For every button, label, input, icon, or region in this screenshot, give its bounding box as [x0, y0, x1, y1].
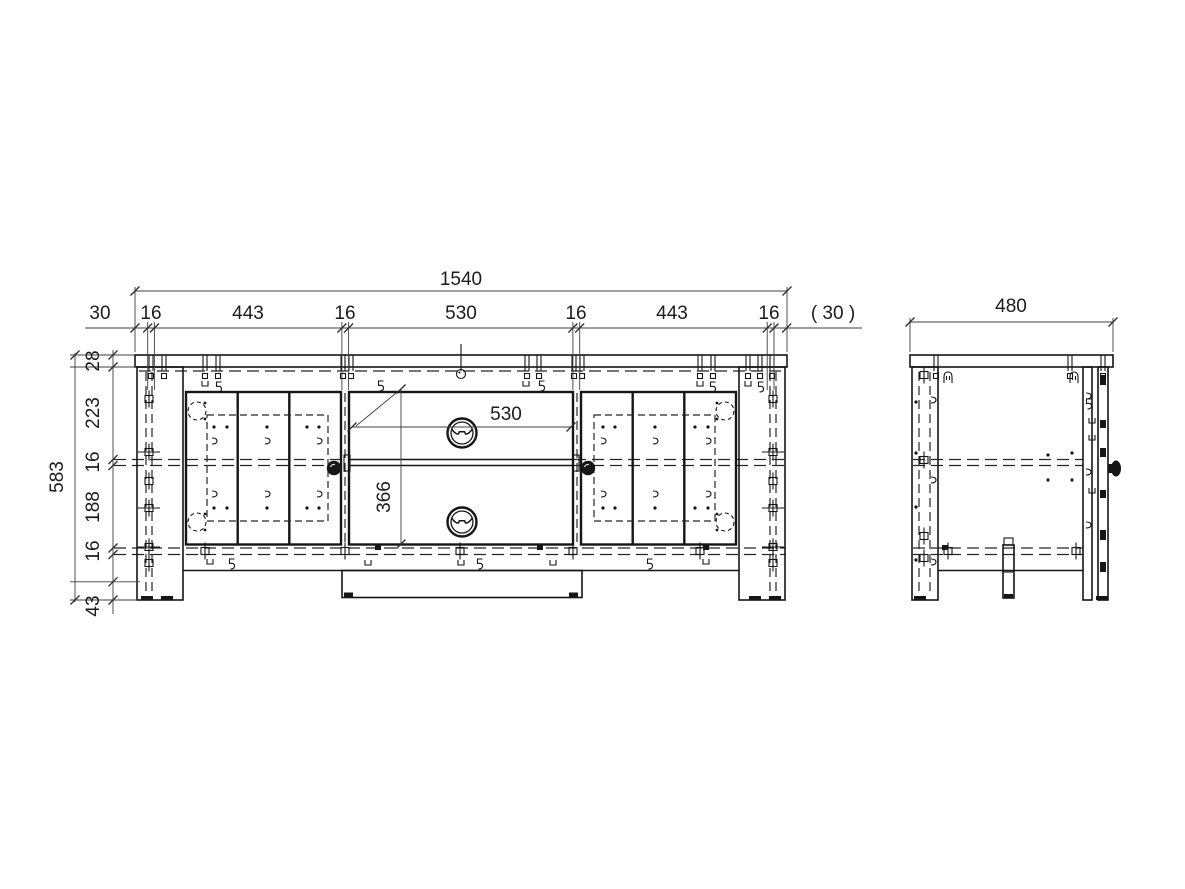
technical-drawing-page: 1540 30 16 443 16 530 16 443 16 ( 30 ) [0, 0, 1185, 889]
dim-label-door-left: 443 [232, 303, 264, 324]
dim-label-top-thickness: 28 [83, 350, 104, 371]
dim-label-overall-height: 583 [47, 461, 68, 493]
dim-label-bottom-thickness: 16 [83, 540, 104, 561]
dim-label-partition-right: 16 [565, 303, 586, 324]
dim-label-side-panel-left: 16 [140, 303, 161, 324]
dim-label-depth: 480 [995, 296, 1027, 317]
dim-label-niche: 530 [445, 303, 477, 324]
dim-label-overhang-right: ( 30 ) [811, 303, 855, 324]
dim-label-overhang-left: 30 [89, 303, 110, 324]
dim-label-foot-height: 43 [83, 595, 104, 616]
dim-label-overall-width: 1540 [440, 269, 482, 290]
paper-background [0, 0, 1185, 889]
furniture-drawing-svg: 1540 30 16 443 16 530 16 443 16 ( 30 ) [0, 0, 1185, 889]
left-door-knob [327, 461, 341, 475]
dim-label-door-right: 443 [656, 303, 688, 324]
dim-label-partition-left: 16 [334, 303, 355, 324]
right-door-knob [581, 461, 595, 475]
dim-label-upper-opening: 223 [83, 397, 104, 429]
dim-label-lower-opening: 188 [83, 491, 104, 523]
dim-label-shelf-thickness: 16 [83, 451, 104, 472]
dim-label-side-panel-right: 16 [758, 303, 779, 324]
dim-label-niche-height: 366 [374, 481, 395, 513]
dim-label-niche-width: 530 [490, 404, 522, 425]
